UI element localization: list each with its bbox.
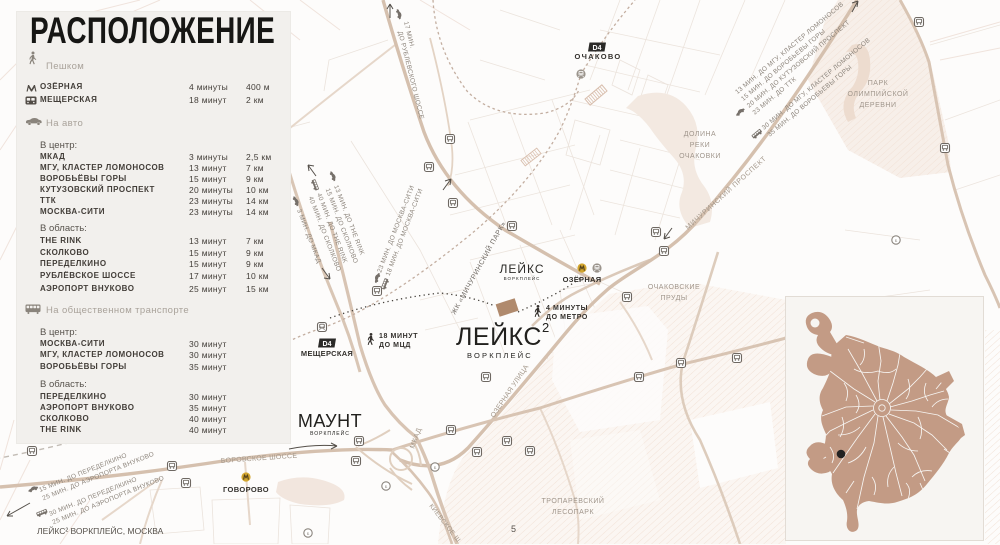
svg-text:Б: Б bbox=[385, 484, 388, 489]
svg-text:ВОРКПЛЕЙС: ВОРКПЛЕЙС bbox=[467, 351, 533, 360]
svg-text:ОЧАКОВСКИЕ: ОЧАКОВСКИЕ bbox=[648, 284, 700, 291]
svg-text:ОЗЁРНАЯ: ОЗЁРНАЯ bbox=[563, 275, 602, 284]
svg-text:МАУНТ: МАУНТ bbox=[298, 411, 362, 431]
svg-text:ГОВОРОВО: ГОВОРОВО bbox=[223, 485, 269, 494]
svg-text:ПРУДЫ: ПРУДЫ bbox=[660, 295, 687, 302]
svg-text:Б: Б bbox=[434, 465, 437, 470]
svg-text:ДО МЕТРО: ДО МЕТРО bbox=[546, 314, 588, 321]
svg-text:ВОРКПЛЕЙС: ВОРКПЛЕЙС bbox=[310, 429, 350, 437]
svg-text:РЕКИ: РЕКИ bbox=[690, 142, 710, 149]
svg-text:ДЕРЕВНИ: ДЕРЕВНИ bbox=[859, 102, 896, 109]
svg-text:4 МИНУТЫ: 4 МИНУТЫ bbox=[546, 305, 588, 312]
svg-text:2: 2 bbox=[542, 320, 549, 335]
svg-text:РАСПОЛОЖЕНИЕ: РАСПОЛОЖЕНИЕ bbox=[30, 12, 275, 51]
svg-text:МЕЩЕРСКАЯ: МЕЩЕРСКАЯ bbox=[301, 349, 353, 358]
svg-text:Б: Б bbox=[895, 238, 898, 243]
svg-text:ОЧАКОВКИ: ОЧАКОВКИ bbox=[679, 153, 721, 160]
svg-text:ДОЛИНА: ДОЛИНА bbox=[684, 131, 716, 138]
svg-text:ВОРКПЛЕЙС: ВОРКПЛЕЙС bbox=[504, 274, 541, 281]
svg-text:18 МИНУТ: 18 МИНУТ bbox=[379, 333, 418, 340]
svg-text:ЛЕЙКС: ЛЕЙКС bbox=[456, 321, 542, 351]
svg-text:ЛЕСОПАРК: ЛЕСОПАРК bbox=[552, 509, 594, 516]
svg-text:ДО МЦД: ДО МЦД bbox=[379, 342, 411, 349]
svg-text:ПАРК: ПАРК bbox=[868, 80, 889, 87]
svg-text:ОЛИМПИЙСКОЙ: ОЛИМПИЙСКОЙ bbox=[848, 89, 909, 98]
svg-text:ОЧАКОВО: ОЧАКОВО bbox=[574, 52, 621, 61]
svg-text:ЛЕЙКС: ЛЕЙКС bbox=[499, 261, 544, 276]
svg-text:ТРОПАРЁВСКИЙ: ТРОПАРЁВСКИЙ bbox=[542, 496, 605, 505]
svg-text:Б: Б bbox=[307, 531, 310, 536]
